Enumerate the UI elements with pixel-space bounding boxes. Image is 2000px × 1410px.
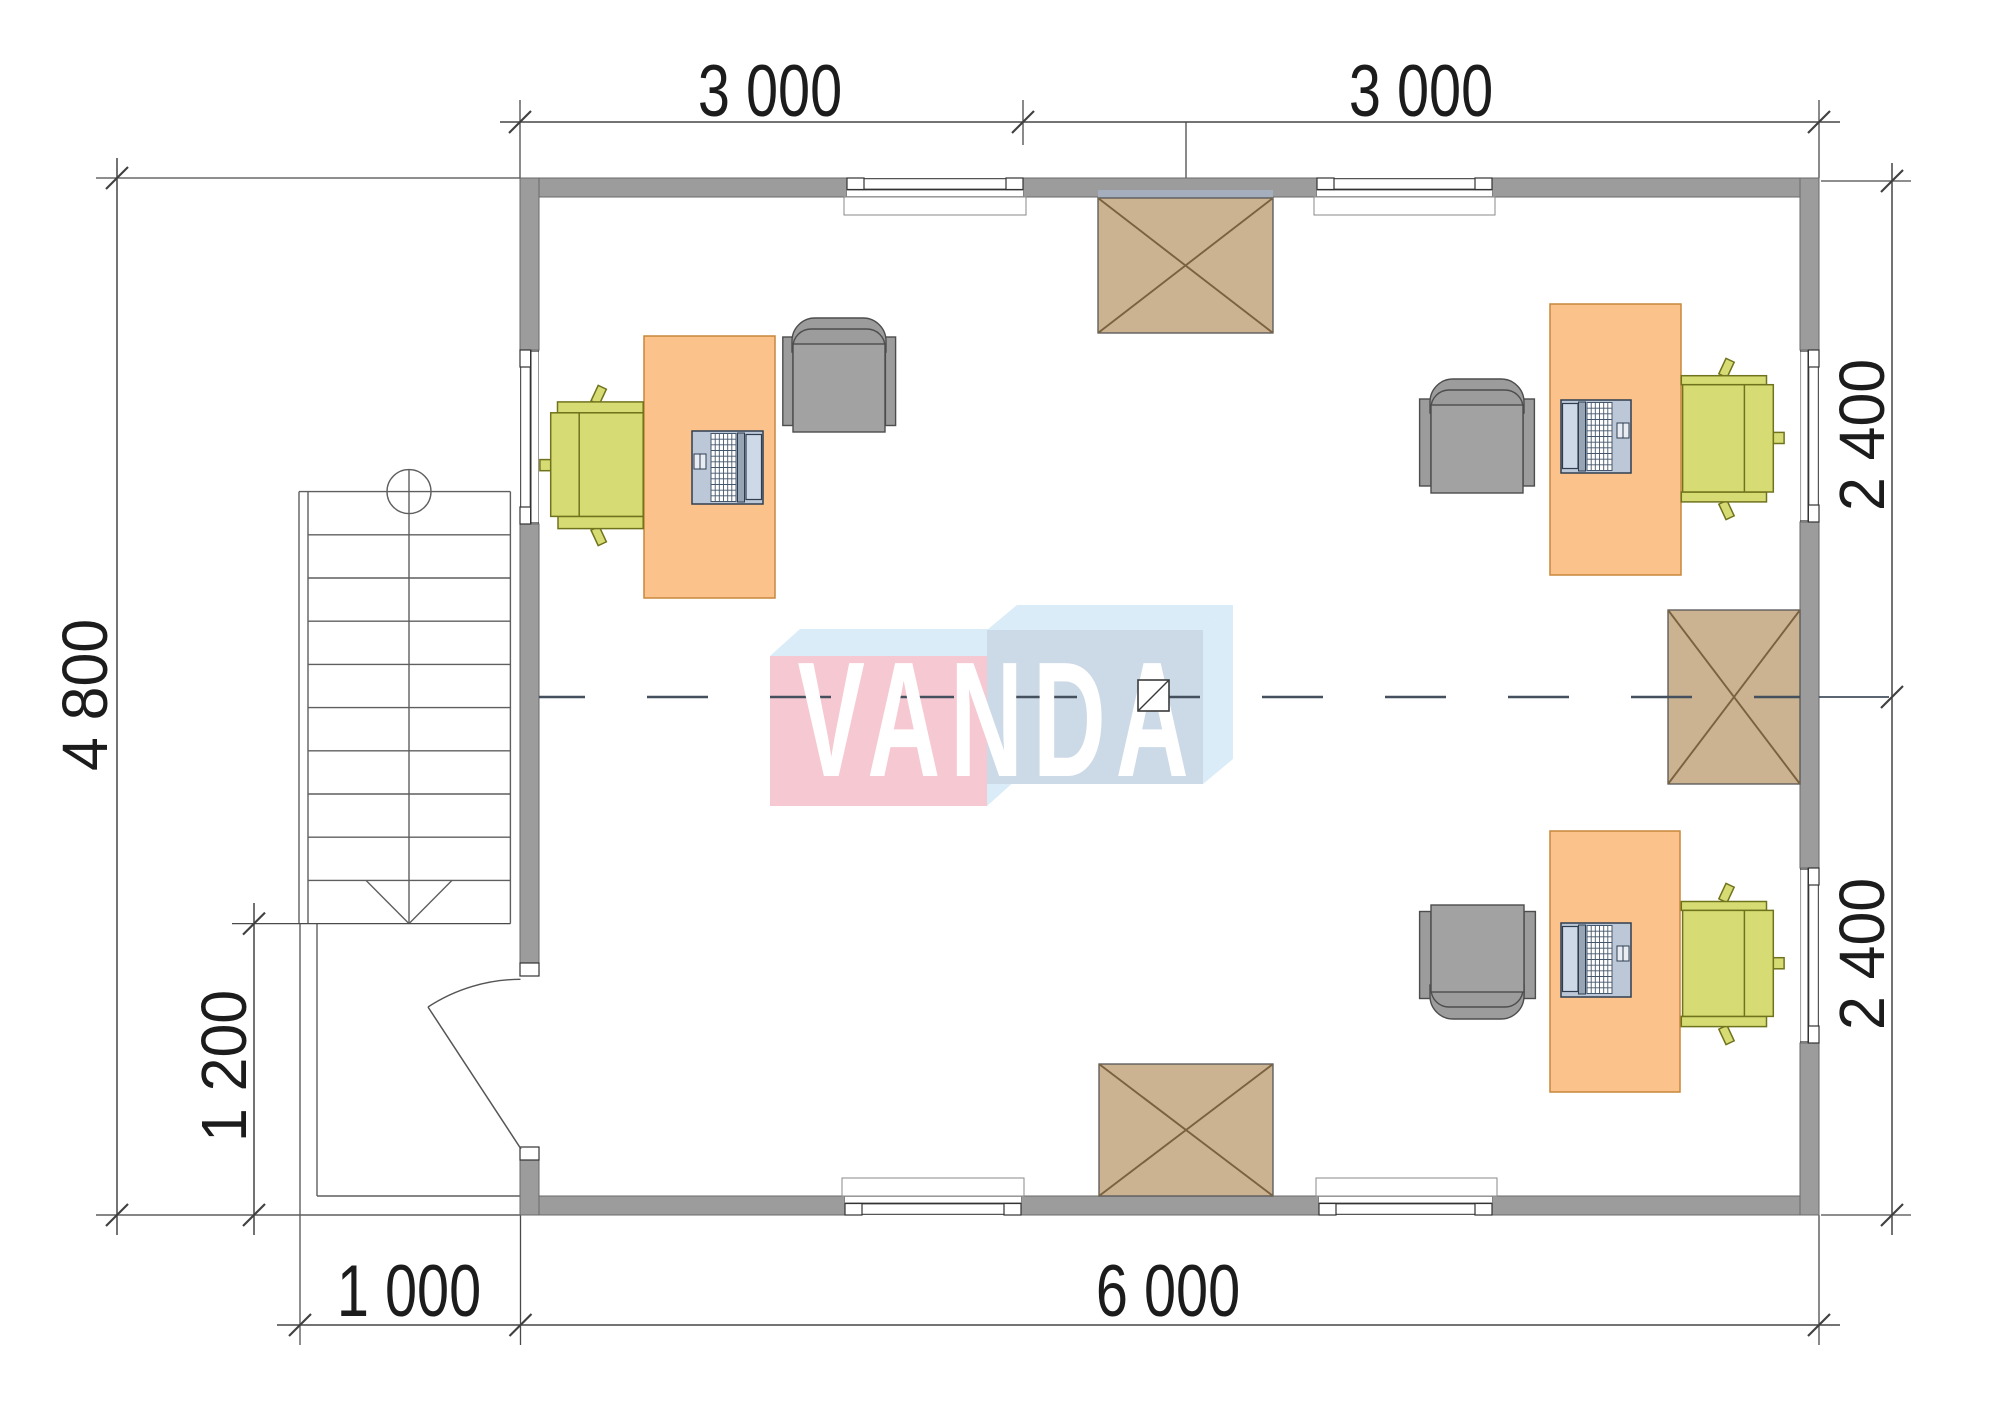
svg-text:3 000: 3 000 (1349, 49, 1493, 131)
svg-text:1 200: 1 200 (189, 990, 261, 1142)
svg-text:6 000: 6 000 (1096, 1249, 1240, 1331)
svg-text:3 000: 3 000 (698, 49, 842, 131)
svg-text:VANDA: VANDA (798, 628, 1199, 811)
svg-text:2 400: 2 400 (1827, 359, 1899, 511)
svg-text:2 400: 2 400 (1827, 878, 1899, 1030)
svg-text:4 800: 4 800 (50, 619, 122, 771)
svg-text:1 000: 1 000 (337, 1249, 481, 1331)
